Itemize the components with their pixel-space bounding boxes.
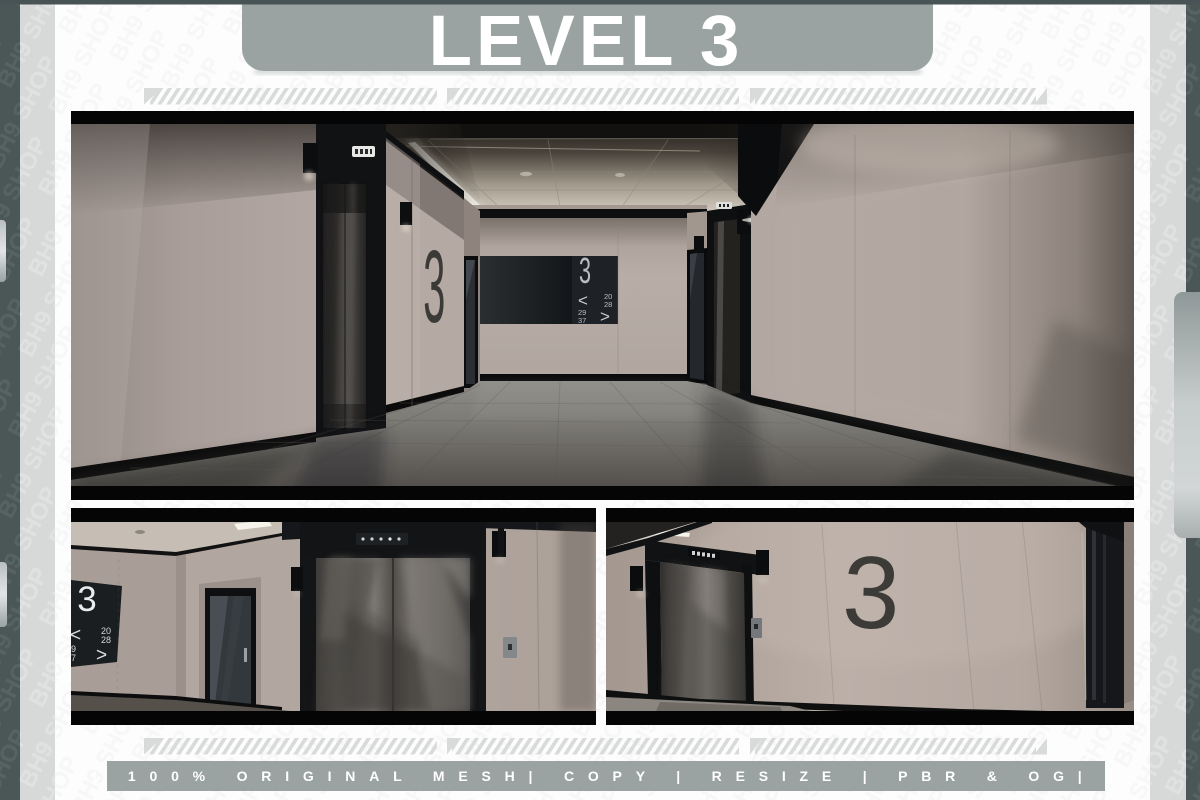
svg-text:3: 3 <box>77 580 96 619</box>
svg-text:3: 3 <box>579 251 591 291</box>
svg-text:3: 3 <box>841 534 902 651</box>
svg-text:| 100% ORIGINAL MESH| COPY | R: | 100% ORIGINAL MESH| COPY | RESIZE | PB… <box>93 768 1096 784</box>
svg-text:28: 28 <box>101 635 111 645</box>
svg-text:<: < <box>70 625 81 646</box>
svg-text:7: 7 <box>71 653 76 663</box>
svg-text:>: > <box>600 307 610 326</box>
svg-text:37: 37 <box>578 316 586 325</box>
svg-text:>: > <box>96 645 107 666</box>
svg-text:3: 3 <box>423 228 445 344</box>
svg-text:LEVEL 3: LEVEL 3 <box>429 2 744 81</box>
